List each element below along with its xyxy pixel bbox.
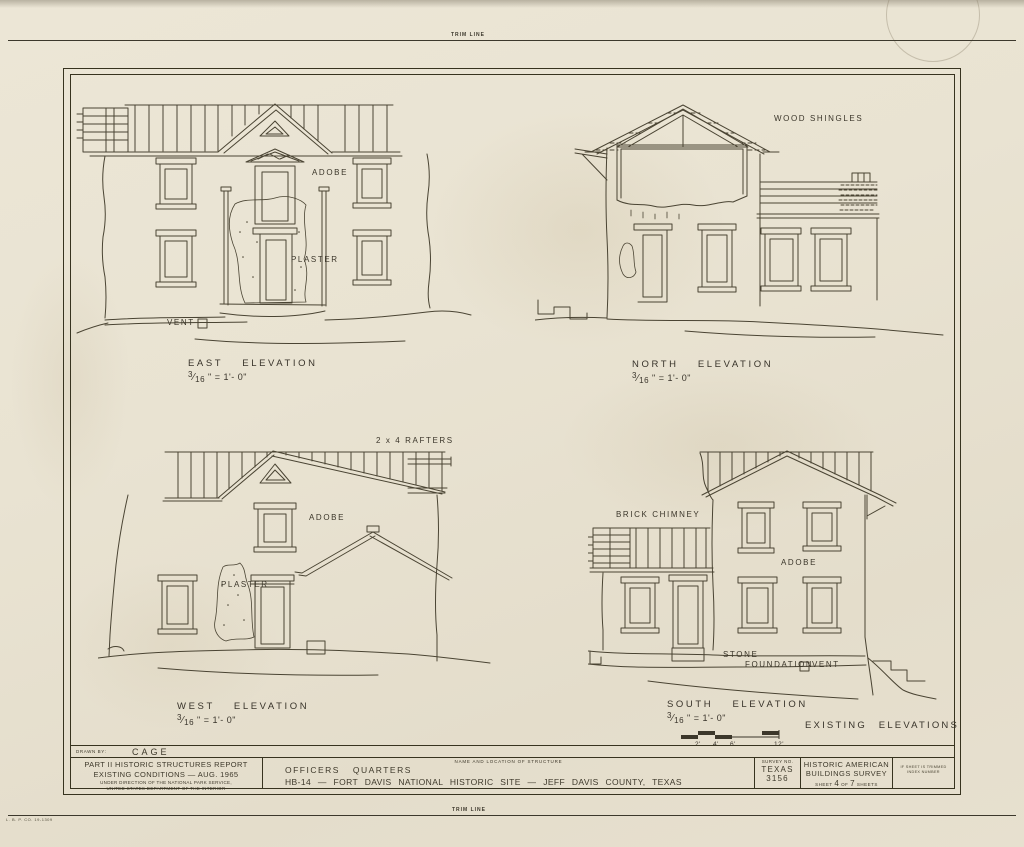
sheet-total: 7 bbox=[850, 779, 855, 788]
survey-number: 3156 bbox=[755, 774, 800, 783]
north-elevation-scale: 3⁄16" = 1'- 0" bbox=[632, 373, 773, 384]
habs-drawing-sheet: TRIM LINE TRIM LINE L. B. P. CO. 19-1309 bbox=[0, 0, 1024, 847]
west-plaster-label: PLASTER bbox=[221, 580, 269, 589]
south-foundation-label: FOUNDATION bbox=[745, 660, 813, 669]
drawn-by-value: CAGE bbox=[132, 747, 170, 757]
of-word: OF bbox=[841, 782, 848, 787]
north-elevation-drawing bbox=[535, 88, 950, 340]
paper-ring-mark bbox=[886, 0, 980, 62]
west-elevation-title: WEST ELEVATION bbox=[177, 701, 309, 712]
west-adobe-label: ADOBE bbox=[309, 513, 345, 522]
structure-label: NAME AND LOCATION OF STRUCTURE bbox=[263, 759, 754, 764]
trim-line-top-label: TRIM LINE bbox=[451, 32, 485, 38]
existing-elevations-note: EXISTING ELEVATIONS bbox=[805, 720, 959, 731]
report-line1: PART II HISTORIC STRUCTURES REPORT bbox=[70, 760, 262, 769]
drawn-by-label: DRAWN BY: bbox=[76, 749, 107, 754]
corner-note-line2: INDEX NUMBER bbox=[893, 770, 954, 775]
sheets-word: SHEETS bbox=[857, 782, 878, 787]
west-rafters-label: 2 x 4 RAFTERS bbox=[376, 436, 454, 445]
west-elevation-caption: WEST ELEVATION 3⁄16" = 1'- 0" bbox=[177, 701, 309, 726]
south-elevation-caption: SOUTH ELEVATION 3⁄16" = 1'- 0" bbox=[667, 699, 808, 724]
east-plaster-label: PLASTER bbox=[291, 255, 339, 264]
trim-line-bottom bbox=[8, 815, 1016, 816]
title-block-drawn-by-row: DRAWN BY: CAGE bbox=[70, 746, 954, 758]
east-adobe-label: ADOBE bbox=[312, 168, 348, 177]
sheet-word: SHEET bbox=[815, 782, 832, 787]
south-elevation-title: SOUTH ELEVATION bbox=[667, 699, 808, 710]
report-line3: UNDER DIRECTION OF THE NATIONAL PARK SER… bbox=[70, 780, 262, 785]
title-block: DRAWN BY: CAGE PART II HISTORIC STRUCTUR… bbox=[70, 745, 954, 788]
report-cell: PART II HISTORIC STRUCTURES REPORT EXIST… bbox=[70, 758, 263, 789]
south-adobe-label: ADOBE bbox=[781, 558, 817, 567]
west-elevation-drawing bbox=[98, 435, 493, 680]
report-line4: UNITED STATES DEPARTMENT OF THE INTERIOR bbox=[70, 786, 262, 791]
east-elevation-caption: EAST ELEVATION 3⁄16" = 1'- 0" bbox=[188, 358, 318, 383]
north-elevation-caption: NORTH ELEVATION 3⁄16" = 1'- 0" bbox=[632, 359, 773, 384]
scan-edge-shadow bbox=[0, 0, 1024, 8]
north-elevation-title: NORTH ELEVATION bbox=[632, 359, 773, 370]
structure-location: HB-14 — FORT DAVIS NATIONAL HISTORIC SIT… bbox=[285, 777, 682, 787]
east-vent-label: VENT bbox=[167, 318, 195, 327]
trim-line-top bbox=[8, 40, 1016, 41]
trim-line-bottom-label: TRIM LINE bbox=[452, 807, 486, 813]
graphic-scale-bar bbox=[681, 729, 791, 741]
survey-state: TEXAS bbox=[755, 765, 800, 774]
survey-number-cell: SURVEY NO. TEXAS 3156 bbox=[755, 758, 801, 789]
south-brick-chimney-label: BRICK CHIMNEY bbox=[616, 510, 700, 519]
printer-mark: L. B. P. CO. 19-1309 bbox=[6, 817, 53, 822]
south-elevation-scale: 3⁄16" = 1'- 0" bbox=[667, 713, 808, 724]
west-elevation-scale: 3⁄16" = 1'- 0" bbox=[177, 715, 309, 726]
report-line2: EXISTING CONDITIONS — AUG. 1965 bbox=[70, 770, 262, 779]
east-elevation-scale: 3⁄16" = 1'- 0" bbox=[188, 372, 318, 383]
survey-number-label: SURVEY NO. bbox=[755, 759, 800, 764]
habs-cell: HISTORIC AMERICAN BUILDINGS SURVEY SHEET… bbox=[801, 758, 893, 789]
habs-line1: HISTORIC AMERICAN bbox=[801, 760, 892, 769]
structure-name: OFFICERS QUARTERS bbox=[285, 765, 412, 775]
south-vent-label: VENT bbox=[812, 660, 840, 669]
habs-line2: BUILDINGS SURVEY bbox=[801, 769, 892, 778]
sheet-count-line: SHEET 4 OF 7 SHEETS bbox=[801, 779, 892, 788]
sheet-number: 4 bbox=[834, 779, 839, 788]
south-stone-label: STONE bbox=[723, 650, 758, 659]
north-wood-shingles-label: WOOD SHINGLES bbox=[774, 114, 863, 123]
structure-cell: NAME AND LOCATION OF STRUCTURE OFFICERS … bbox=[263, 758, 755, 789]
east-elevation-title: EAST ELEVATION bbox=[188, 358, 318, 369]
corner-note-cell: IF SHEET IS TRIMMED INDEX NUMBER bbox=[893, 758, 954, 789]
east-elevation-drawing bbox=[75, 92, 480, 347]
